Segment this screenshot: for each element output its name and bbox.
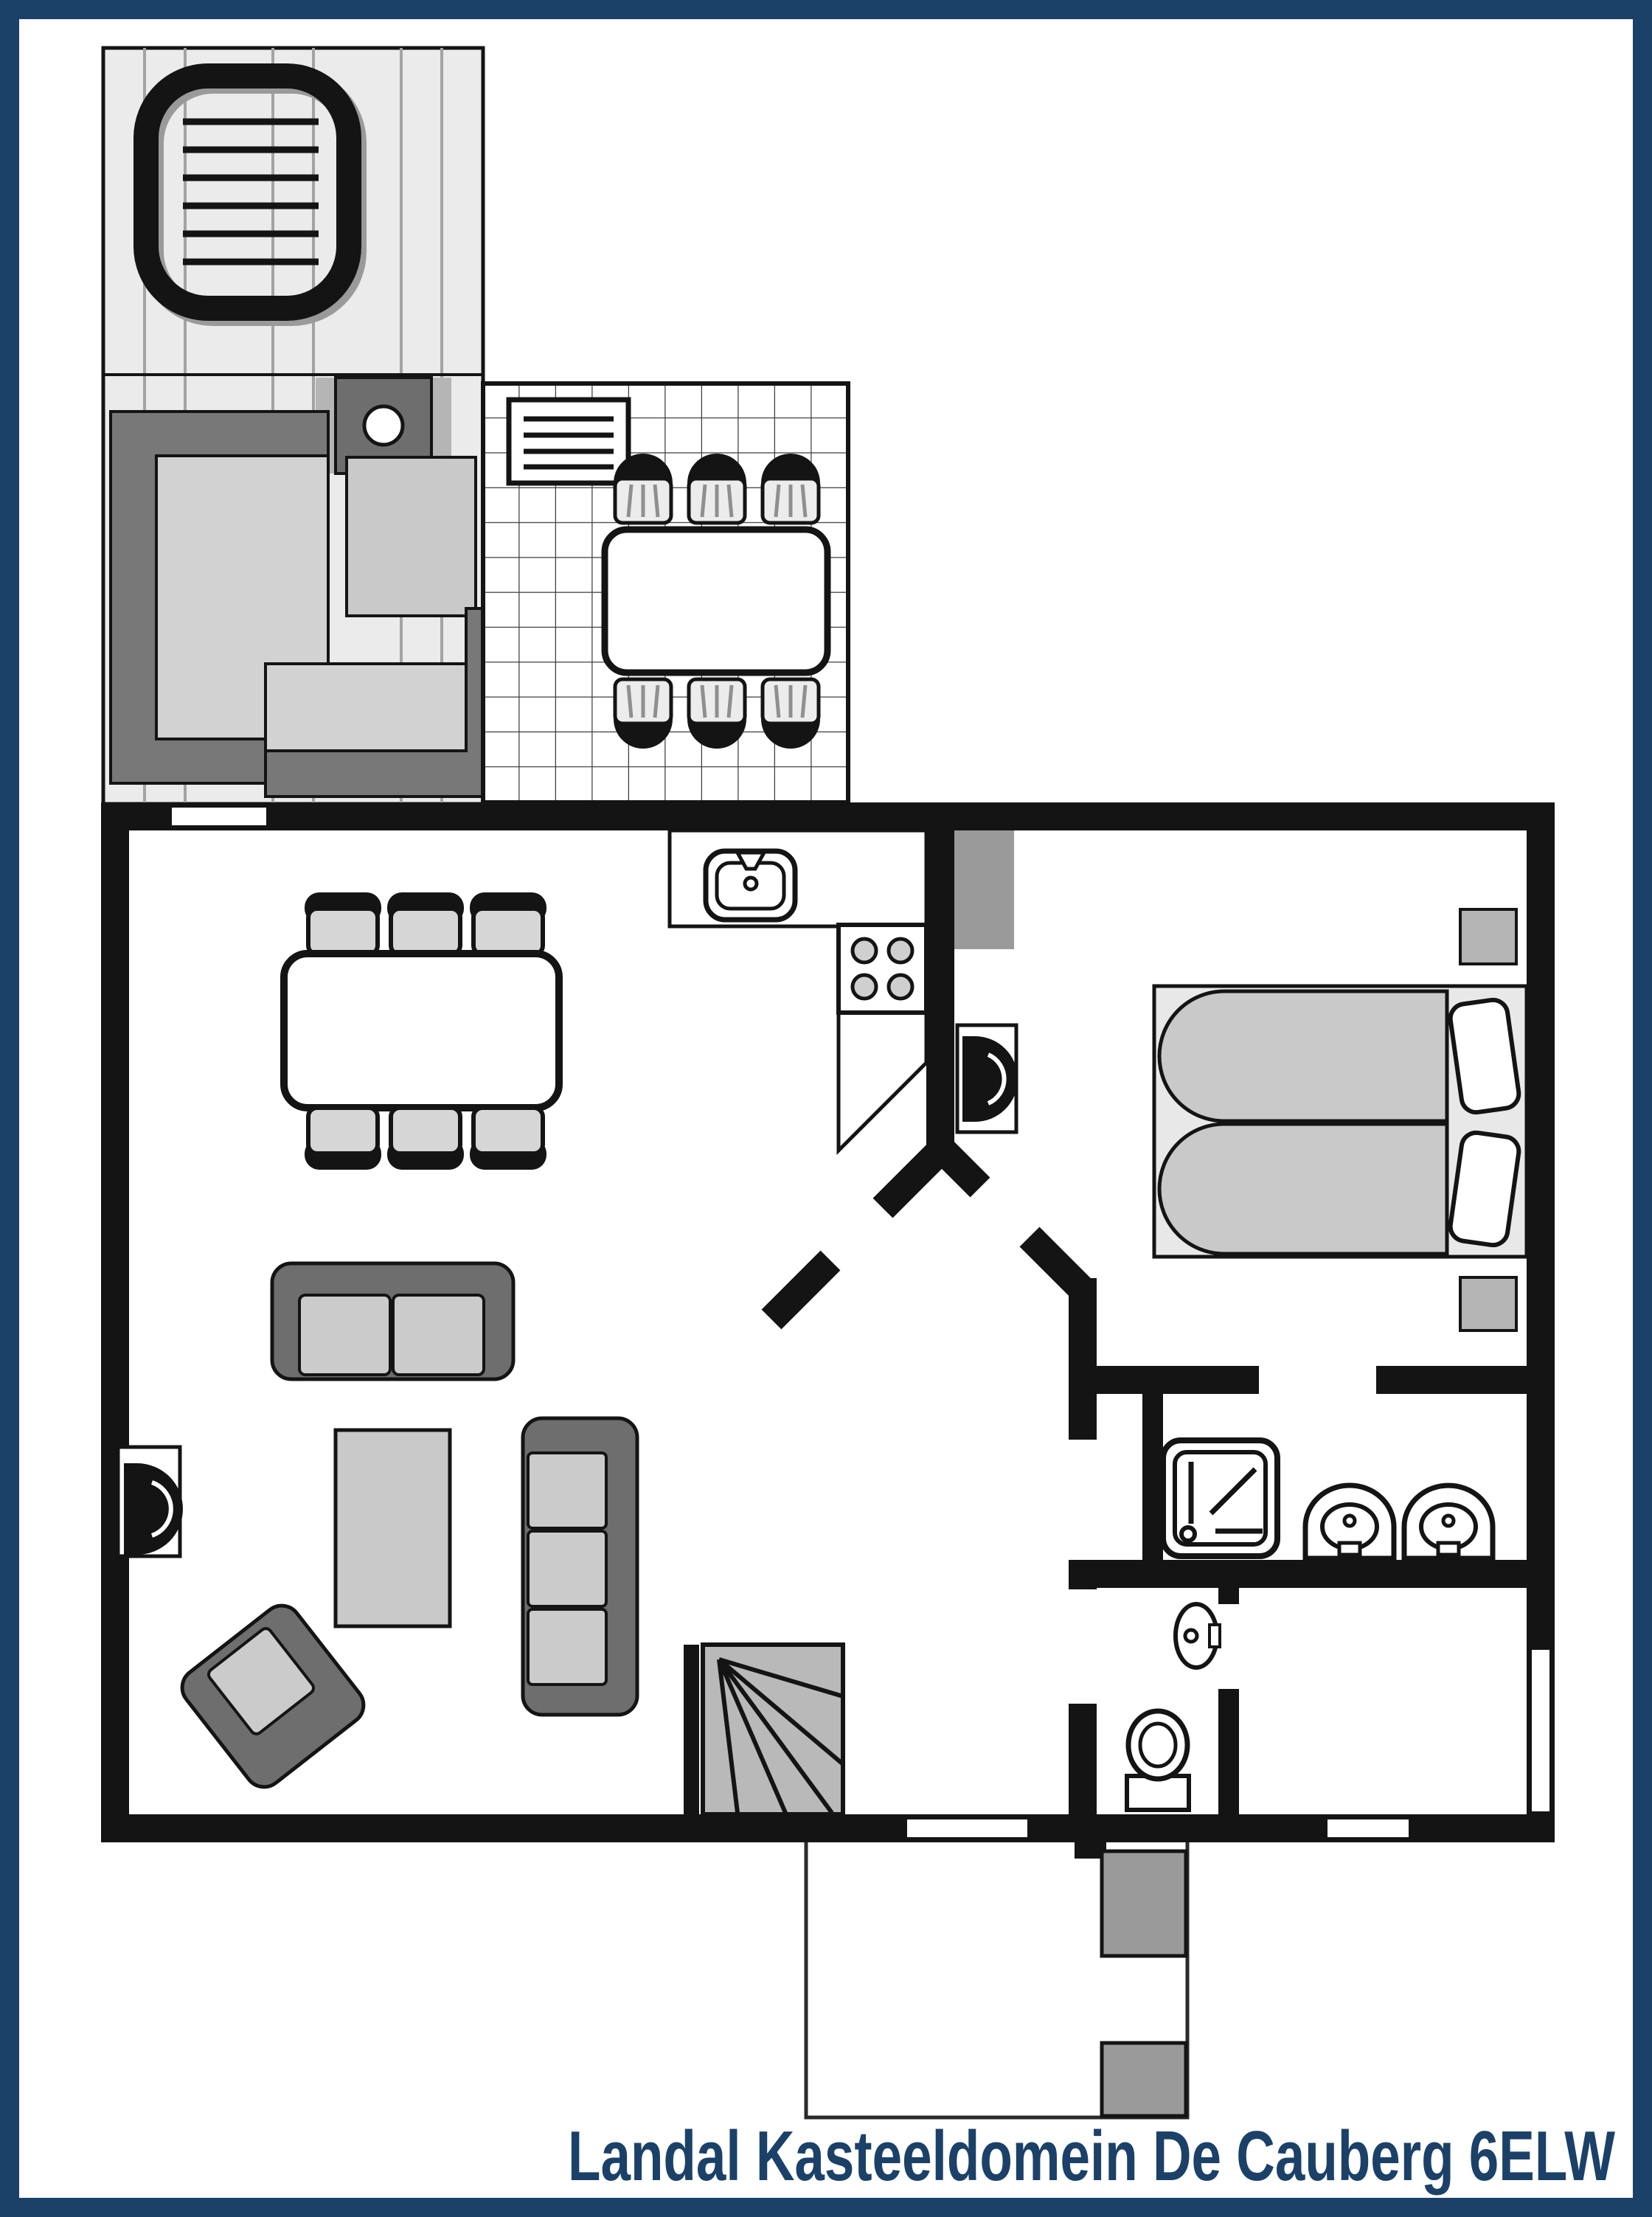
two-seat-sofa — [272, 1263, 513, 1379]
storage-window — [1532, 1650, 1549, 1811]
storage-back-door — [1327, 1819, 1409, 1837]
nightstand-top — [1460, 909, 1516, 964]
washbasin — [1404, 1485, 1493, 1558]
side-table — [347, 457, 476, 616]
planter — [1102, 1851, 1186, 1956]
dining-chairs-top — [305, 892, 546, 954]
sauna-deck — [103, 48, 513, 804]
deck-door — [172, 808, 266, 825]
coffee-table — [336, 1430, 450, 1626]
mattress — [1159, 991, 1447, 1121]
washbasin — [1305, 1485, 1394, 1558]
porch — [806, 1842, 1187, 2117]
stairs — [703, 1645, 843, 1814]
hand-basin — [1176, 1604, 1220, 1668]
bedroom-tv — [957, 1025, 1018, 1132]
stair-wall — [684, 1645, 699, 1814]
bathroom-bottom-wall — [1069, 1560, 1527, 1588]
vent-grille — [509, 400, 628, 483]
mattress — [1159, 1124, 1447, 1254]
closet-door — [1065, 1440, 1100, 1560]
toilet — [1127, 1711, 1189, 1810]
outdoor-chairs-bottom — [614, 679, 820, 749]
wardrobe — [954, 830, 1014, 949]
closet-wall — [1142, 1394, 1163, 1560]
pillow — [1448, 1131, 1521, 1246]
double-bed — [1154, 986, 1527, 1257]
nightstand-bottom — [1460, 1277, 1516, 1330]
toilet-door — [1065, 1589, 1100, 1704]
plan-title: Landal Kasteeldomein De Cauberg 6ELW — [568, 2117, 1615, 2196]
hall-window — [907, 1819, 1027, 1837]
dining-chairs-bottom — [305, 1108, 546, 1170]
pillow — [1448, 998, 1521, 1114]
outdoor-dining-table — [605, 530, 827, 673]
outdoor-chairs-top — [614, 454, 820, 523]
tv — [118, 1447, 183, 1556]
dining-table — [284, 954, 559, 1108]
stove — [839, 925, 926, 1013]
planter — [1102, 2043, 1186, 2116]
terrace — [483, 384, 848, 802]
floor-plan: Landal Kasteeldomein De Cauberg 6ELW — [0, 0, 1652, 2217]
three-seat-sofa — [523, 1418, 637, 1715]
kitchen-sink — [706, 851, 795, 920]
shower — [1163, 1440, 1277, 1556]
kitchen-wall — [926, 830, 954, 1155]
bathroom-door — [1259, 1362, 1376, 1398]
